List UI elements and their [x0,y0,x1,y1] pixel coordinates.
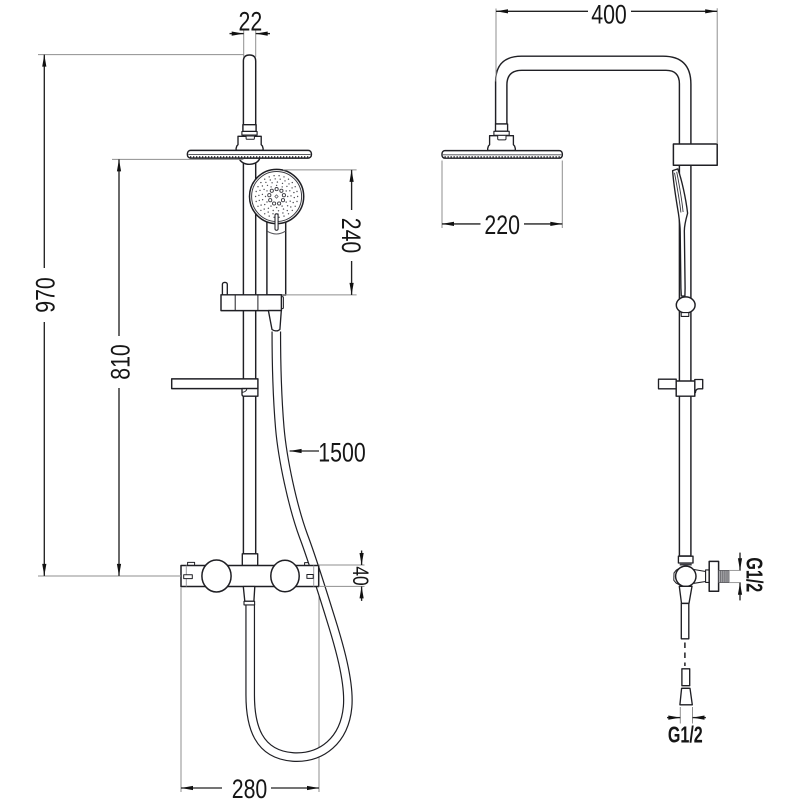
svg-text:G1/2: G1/2 [668,723,703,748]
svg-text:970: 970 [31,277,61,313]
svg-text:280: 280 [232,775,268,800]
svg-text:G1/2: G1/2 [741,557,766,592]
svg-text:220: 220 [484,211,520,241]
svg-text:400: 400 [591,0,627,30]
svg-text:22: 22 [239,7,263,37]
svg-text:1500: 1500 [318,438,365,468]
svg-text:810: 810 [106,344,136,380]
svg-text:40: 40 [347,566,371,585]
svg-text:240: 240 [335,218,365,254]
